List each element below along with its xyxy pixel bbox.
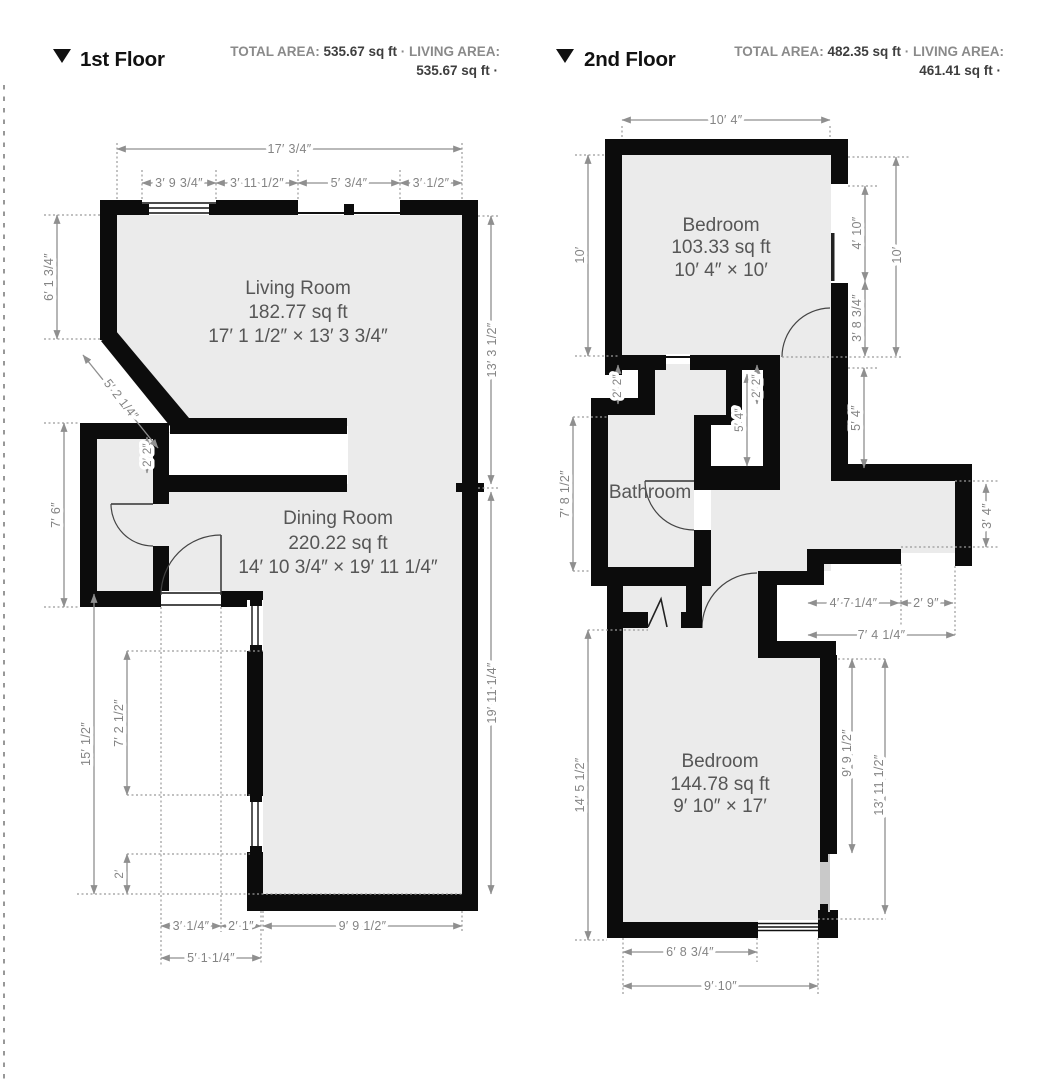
svg-text:7′ 2 1/2″: 7′ 2 1/2″ — [112, 699, 126, 747]
svg-text:2′ 1″: 2′ 1″ — [228, 919, 254, 933]
svg-text:13′ 11 1/2″: 13′ 11 1/2″ — [872, 754, 886, 816]
svg-text:7′ 4 1/4″: 7′ 4 1/4″ — [858, 628, 906, 642]
svg-text:7′ 8 1/2″: 7′ 8 1/2″ — [558, 470, 572, 518]
svg-text:10′: 10′ — [573, 246, 587, 264]
svg-text:Bedroom: Bedroom — [682, 215, 759, 236]
svg-text:14′ 10 3/4″ × 19′ 11 1/4″: 14′ 10 3/4″ × 19′ 11 1/4″ — [238, 557, 438, 578]
svg-text:182.77 sq ft: 182.77 sq ft — [248, 302, 348, 323]
svg-text:Dining Room: Dining Room — [283, 508, 393, 529]
svg-text:461.41 sq ft ·: 461.41 sq ft · — [919, 63, 1001, 78]
svg-text:5′ 1 1/4″: 5′ 1 1/4″ — [187, 951, 235, 965]
svg-text:9′ 10″ × 17′: 9′ 10″ × 17′ — [673, 796, 767, 817]
svg-text:3′ 11 1/2″: 3′ 11 1/2″ — [230, 176, 284, 190]
svg-text:TOTAL AREA: 482.35 sq ft · LIV: TOTAL AREA: 482.35 sq ft · LIVING AREA: — [734, 44, 1004, 59]
svg-text:3′ 4″: 3′ 4″ — [980, 503, 994, 529]
svg-text:19′ 11 1/4″: 19′ 11 1/4″ — [485, 662, 499, 724]
svg-text:2′ 2″: 2′ 2″ — [142, 443, 154, 467]
svg-text:7′ 6″: 7′ 6″ — [49, 502, 63, 528]
svg-text:13′ 3 1/2″: 13′ 3 1/2″ — [485, 322, 499, 377]
svg-text:3′ 9 3/4″: 3′ 9 3/4″ — [155, 176, 203, 190]
svg-text:15′ 1/2″: 15′ 1/2″ — [79, 722, 93, 766]
svg-text:9′ 10″: 9′ 10″ — [704, 979, 737, 993]
svg-text:4′ 10″: 4′ 10″ — [850, 216, 864, 249]
svg-text:17′ 3/4″: 17′ 3/4″ — [268, 142, 312, 156]
svg-text:5′ 4″: 5′ 4″ — [849, 405, 863, 431]
svg-text:144.78 sq ft: 144.78 sq ft — [670, 774, 770, 795]
svg-text:220.22 sq ft: 220.22 sq ft — [288, 533, 388, 554]
svg-text:10′ 4″: 10′ 4″ — [710, 113, 743, 127]
svg-text:10′ 4″ × 10′: 10′ 4″ × 10′ — [674, 260, 768, 281]
svg-text:17′ 1 1/2″ × 13′ 3 3/4″: 17′ 1 1/2″ × 13′ 3 3/4″ — [208, 326, 388, 347]
svg-text:14′ 5 1/2″: 14′ 5 1/2″ — [573, 757, 587, 812]
svg-text:10′: 10′ — [890, 246, 904, 264]
svg-text:3′ 8 3/4″: 3′ 8 3/4″ — [850, 294, 864, 342]
svg-text:535.67 sq ft ·: 535.67 sq ft · — [416, 63, 498, 78]
svg-text:3′ 1/4″: 3′ 1/4″ — [173, 919, 210, 933]
svg-text:2′ 2″: 2′ 2″ — [612, 374, 624, 398]
svg-text:6′ 1 3/4″: 6′ 1 3/4″ — [42, 253, 56, 301]
svg-text:2′: 2′ — [114, 869, 126, 878]
svg-text:Bathroom: Bathroom — [609, 482, 691, 503]
svg-text:TOTAL AREA: 535.67 sq ft · LIV: TOTAL AREA: 535.67 sq ft · LIVING AREA: — [230, 44, 500, 59]
svg-text:5′ 3/4″: 5′ 3/4″ — [331, 176, 368, 190]
svg-text:2′ 2″: 2′ 2″ — [751, 374, 763, 398]
svg-text:2nd Floor: 2nd Floor — [584, 48, 676, 71]
svg-text:Living Room: Living Room — [245, 278, 351, 299]
svg-text:4′ 7 1/4″: 4′ 7 1/4″ — [830, 596, 878, 610]
svg-text:Bedroom: Bedroom — [681, 751, 758, 772]
svg-text:2′ 9″: 2′ 9″ — [913, 596, 939, 610]
svg-text:103.33 sq ft: 103.33 sq ft — [671, 237, 771, 258]
svg-text:3′ 1/2″: 3′ 1/2″ — [413, 176, 450, 190]
svg-text:1st Floor: 1st Floor — [80, 48, 165, 71]
svg-text:9′ 9 1/2″: 9′ 9 1/2″ — [840, 729, 854, 777]
svg-text:9′ 9 1/2″: 9′ 9 1/2″ — [339, 919, 387, 933]
svg-text:6′ 8 3/4″: 6′ 8 3/4″ — [666, 945, 714, 959]
svg-text:5′ 4″: 5′ 4″ — [734, 408, 746, 432]
